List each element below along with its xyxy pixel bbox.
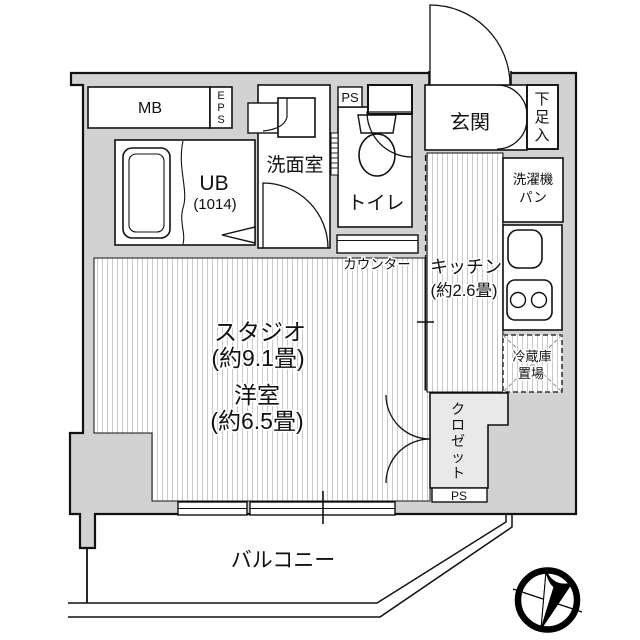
north-compass-icon (513, 571, 582, 630)
label-laundry-1: 洗濯機 (513, 172, 554, 187)
counter-top (337, 235, 418, 253)
label-kitchen-size: (約2.6畳) (431, 281, 498, 300)
label-shoe-3: 入 (534, 127, 549, 144)
toilet-icon (358, 115, 396, 133)
label-closet-3: ゼ (451, 433, 465, 449)
label-western-room-size: (約6.5畳) (210, 408, 303, 434)
entrance-opening (429, 71, 511, 87)
label-closet-5: ト (451, 465, 465, 481)
label-eps-e: E (217, 90, 224, 102)
label-washroom: 洗面室 (266, 154, 323, 176)
label-counter: カウンター (343, 257, 411, 272)
toilet-shelf (368, 85, 412, 114)
label-balcony: バルコニー (231, 549, 336, 572)
label-mb: MB (138, 100, 162, 117)
floorplan-drawing: MB E P S PS 玄関 下 足 入 洗面室 トイレ UB (1014) 洗… (0, 0, 640, 640)
label-eps-s: S (217, 114, 224, 126)
label-shoe-1: 下 (534, 91, 549, 108)
bathtub-inner (129, 154, 164, 232)
label-kitchen: キッチン (430, 257, 502, 277)
label-western-room: 洋室 (234, 382, 280, 408)
label-shoe-2: 足 (534, 109, 549, 126)
label-closet-4: ッ (451, 449, 465, 465)
washbasin-icon (278, 98, 315, 137)
label-ub: UB (199, 172, 228, 195)
label-closet-1: ク (451, 401, 465, 417)
hatched-wall (331, 133, 338, 175)
label-eps-p: P (217, 102, 224, 114)
label-fridge-2: 置場 (518, 366, 544, 381)
burner-right (532, 293, 547, 308)
label-genkan: 玄関 (450, 111, 490, 134)
label-studio: スタジオ (214, 319, 306, 345)
label-closet-2: ロ (451, 417, 465, 433)
floorplan-canvas: MB E P S PS 玄関 下 足 入 洗面室 トイレ UB (1014) 洗… (0, 0, 640, 640)
label-studio-size: (約9.1畳) (211, 345, 304, 371)
label-fridge-1: 冷蔵庫 (512, 349, 551, 364)
label-laundry-2: パン (519, 190, 547, 205)
label-toilet: トイレ (347, 193, 404, 214)
label-ps-bottom: PS (451, 489, 467, 503)
burner-left (511, 293, 526, 308)
label-ps-top: PS (341, 90, 359, 105)
label-ub-size: (1014) (193, 196, 236, 213)
kitchen-sink-icon (508, 230, 542, 268)
